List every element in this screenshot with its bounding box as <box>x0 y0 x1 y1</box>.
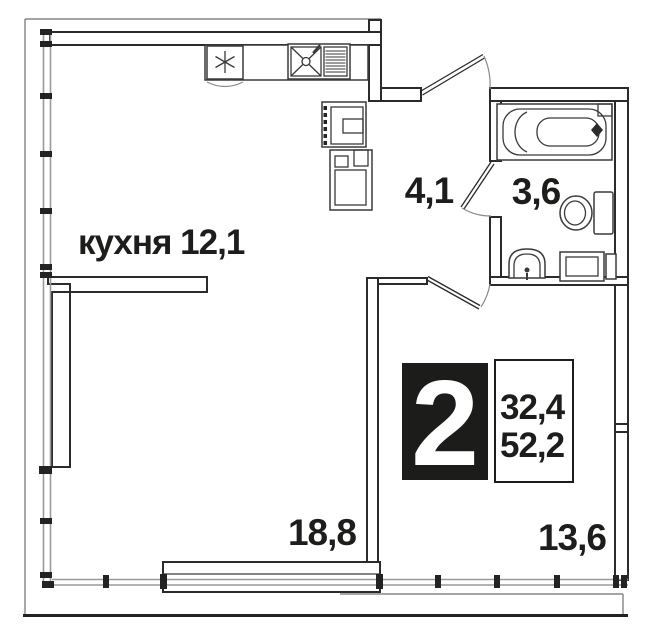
room-label-living: 18,8 <box>288 512 356 553</box>
wall-living-bottom <box>163 562 380 592</box>
entrance-door <box>421 55 490 96</box>
wall-left-partition <box>52 292 70 467</box>
room-label-bedroom: 13,6 <box>538 517 606 558</box>
toilet-icon <box>560 192 613 234</box>
bedroom-door <box>427 277 490 310</box>
wall-kitchen-partition <box>48 277 207 292</box>
badge-area-upper: 32,4 <box>500 388 566 427</box>
kitchen-cabinet-icon <box>330 150 372 210</box>
floor-plan-drawing: 2 32,4 52,2 кухня 12,1 4,1 3,6 18,8 13,6 <box>0 0 653 640</box>
room-label-hallway: 4,1 <box>405 170 454 211</box>
badge-area-lower: 52,2 <box>500 426 565 465</box>
wall-bathroom-left-lower <box>490 217 501 285</box>
wall-bathroom-top <box>490 88 628 101</box>
washing-machine-icon <box>560 252 616 281</box>
badge-room-count: 2 <box>411 355 479 491</box>
wall-room-divider <box>367 278 378 563</box>
bathroom-sink-icon <box>509 249 545 280</box>
wall-right <box>615 101 628 580</box>
room-label-kitchen: кухня 12,1 <box>78 223 245 262</box>
room-label-bathroom: 3,6 <box>512 171 561 212</box>
bathroom-door <box>461 162 494 216</box>
wall-right-joint <box>615 424 628 432</box>
kitchen-sink-icon <box>288 44 350 79</box>
floor-plan: 2 32,4 52,2 кухня 12,1 4,1 3,6 18,8 13,6 <box>0 0 653 640</box>
stove-icon <box>322 102 366 147</box>
wall-top <box>50 32 381 45</box>
bathtub-icon <box>497 104 612 160</box>
apartment-badge: 2 32,4 52,2 <box>402 355 573 491</box>
wall-entry <box>381 88 421 101</box>
